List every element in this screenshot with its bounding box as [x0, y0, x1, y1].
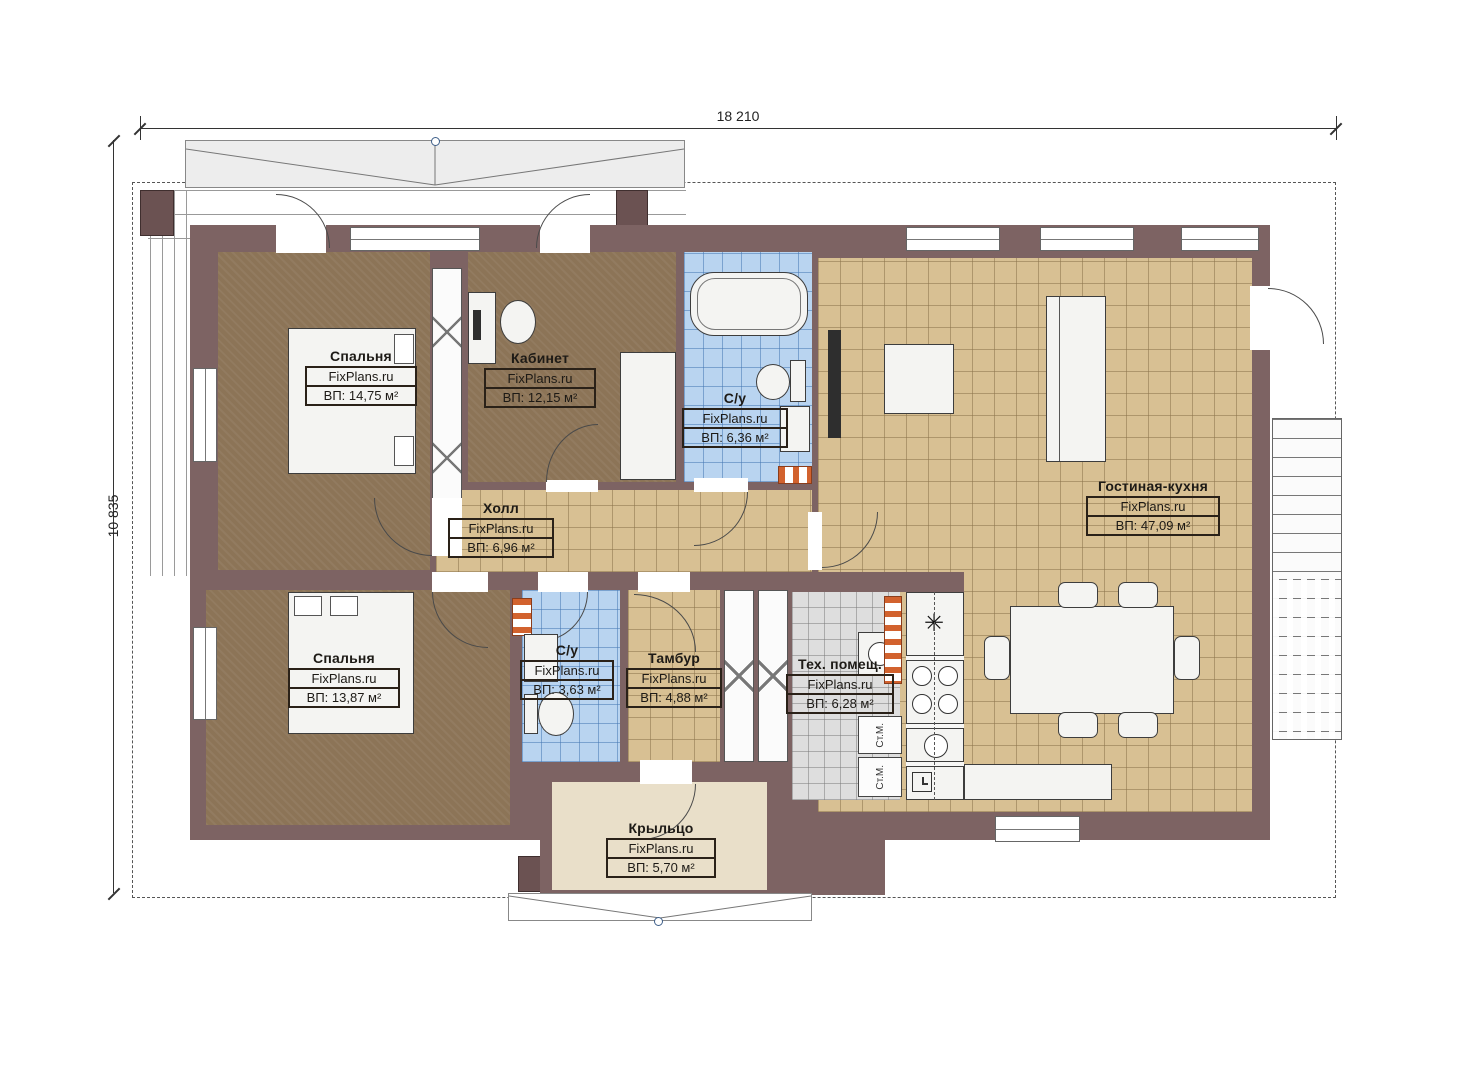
- pillow: [330, 596, 358, 616]
- door-opening-bedroom-2: [432, 572, 488, 592]
- room-name: Кабинет: [484, 350, 596, 366]
- chair: [1058, 582, 1098, 608]
- canopy-lines-icon: [509, 894, 811, 920]
- watermark: FixPlans.ru: [628, 670, 720, 689]
- room-area: ВП: 4,88 м²: [628, 689, 720, 706]
- watermark: FixPlans.ru: [307, 368, 415, 387]
- toilet-tank-1: [790, 360, 806, 402]
- tv-icon: [828, 330, 841, 438]
- burner-icon: [938, 694, 958, 714]
- burner-icon: [912, 666, 932, 686]
- terrace-column-right: [616, 190, 648, 226]
- clock-icon: [912, 772, 932, 792]
- watermark: FixPlans.ru: [684, 410, 786, 429]
- watermark: FixPlans.ru: [1088, 498, 1218, 517]
- room-name: Крыльцо: [606, 820, 716, 836]
- closet-1: [432, 268, 462, 522]
- wardrobe: [620, 352, 676, 480]
- kitchen-centerline: [934, 592, 935, 800]
- sofa: [1046, 296, 1106, 462]
- watermark: FixPlans.ru: [522, 662, 612, 681]
- watermark: FixPlans.ru: [290, 670, 398, 689]
- room-area: ВП: 5,70 м²: [608, 859, 714, 876]
- towel-rail-1: [778, 466, 812, 484]
- watermark: FixPlans.ru: [450, 520, 552, 539]
- toilet-tank-2: [524, 694, 538, 734]
- window-top-2: [906, 227, 1000, 251]
- monitor-icon: [473, 310, 481, 340]
- room-area: ВП: 6,28 м²: [788, 695, 892, 712]
- office-chair: [500, 300, 536, 344]
- room-label-office: Кабинет FixPlans.ru ВП: 12,15 м²: [484, 350, 596, 408]
- watermark: FixPlans.ru: [486, 370, 594, 389]
- window-top-4: [1181, 227, 1259, 251]
- dimension-tick: [108, 888, 121, 901]
- entrance-door-opening: [1250, 286, 1270, 350]
- room-area: ВП: 47,09 м²: [1088, 517, 1218, 534]
- room-name: Спальня: [288, 650, 400, 666]
- room-label-tech-room: Тех. помещ. FixPlans.ru ВП: 6,28 м²: [786, 656, 894, 714]
- window-left-2: [193, 627, 217, 720]
- extension-line: [1336, 116, 1337, 140]
- ridge-marker: [431, 137, 440, 146]
- room-area: ВП: 13,87 м²: [290, 689, 398, 706]
- room-area: ВП: 6,96 м²: [450, 539, 552, 556]
- kitchen-partition-wall: [812, 572, 964, 592]
- room-name: С/у: [520, 642, 614, 658]
- door-opening-living: [808, 512, 822, 570]
- door-opening-vestibule-bottom: [640, 760, 692, 784]
- room-name: Спальня: [305, 348, 417, 364]
- room-label-bathroom-1: С/у FixPlans.ru ВП: 6,36 м²: [682, 390, 788, 448]
- room-label-bedroom-1: Спальня FixPlans.ru ВП: 14,75 м²: [305, 348, 417, 406]
- door-opening-bathroom-2: [538, 572, 588, 592]
- washing-machine-label: Ст.М.: [875, 723, 886, 748]
- terrace-column-left: [140, 190, 174, 236]
- washing-machine-2: Ст.М.: [858, 757, 902, 797]
- room-label-hall: Холл FixPlans.ru ВП: 6,96 м²: [448, 500, 554, 558]
- room-label-porch: Крыльцо FixPlans.ru ВП: 5,70 м²: [606, 820, 716, 878]
- room-label-vestibule: Тамбур FixPlans.ru ВП: 4,88 м²: [626, 650, 722, 708]
- chair: [1174, 636, 1200, 680]
- closet-2: [724, 590, 754, 762]
- chair: [1118, 582, 1158, 608]
- pillow: [394, 436, 414, 466]
- chair: [1118, 712, 1158, 738]
- room-label-bathroom-2: С/у FixPlans.ru ВП: 3,63 м²: [520, 642, 614, 700]
- sink-basin-icon: [924, 734, 948, 758]
- door-opening-vestibule-top: [638, 572, 690, 592]
- chair: [1058, 712, 1098, 738]
- room-label-bedroom-2: Спальня FixPlans.ru ВП: 13,87 м²: [288, 650, 400, 708]
- closet-3: [758, 590, 788, 762]
- room-area: ВП: 12,15 м²: [486, 389, 594, 406]
- window-bottom-1: [995, 816, 1080, 842]
- canopy-marker: [654, 917, 663, 926]
- chair: [984, 636, 1010, 680]
- room-name: Тамбур: [626, 650, 722, 666]
- extension-line: [140, 116, 141, 140]
- floor-plan: ✳ Ст.М. Ст.М. Спальня F: [0, 0, 1473, 1080]
- room-name: Тех. помещ.: [786, 656, 894, 672]
- exterior-stairs: [1272, 418, 1342, 740]
- dining-table: [1010, 606, 1174, 714]
- washing-machine-1: Ст.М.: [858, 716, 902, 754]
- dimension-height: 10 835: [105, 466, 121, 566]
- window-top-1: [350, 227, 480, 251]
- room-name: Холл: [448, 500, 554, 516]
- room-area: ВП: 6,36 м²: [684, 429, 786, 446]
- door-opening-bathroom-1: [694, 478, 748, 492]
- window-left-1: [193, 368, 217, 462]
- watermark: FixPlans.ru: [788, 676, 892, 695]
- terrace-canopy: [185, 140, 685, 188]
- window-top-3: [1040, 227, 1134, 251]
- room-area: ВП: 3,63 м²: [522, 681, 612, 698]
- canopy-lines-icon: [186, 141, 684, 187]
- sideboard: [964, 764, 1112, 800]
- dimension-width: 18 210: [688, 108, 788, 124]
- room-label-living-kitchen: Гостиная-кухня FixPlans.ru ВП: 47,09 м²: [1086, 478, 1220, 536]
- bathtub: [690, 272, 808, 336]
- room-name: Гостиная-кухня: [1086, 478, 1220, 494]
- coffee-table: [884, 344, 954, 414]
- dimension-line-top: [140, 128, 1336, 129]
- burner-icon: [938, 666, 958, 686]
- watermark: FixPlans.ru: [608, 840, 714, 859]
- washing-machine-label: Ст.М.: [875, 765, 886, 790]
- dimension-tick: [108, 135, 121, 148]
- room-name: С/у: [682, 390, 788, 406]
- towel-rail-2: [512, 598, 532, 636]
- pergola-lines: [150, 190, 188, 576]
- room-area: ВП: 14,75 м²: [307, 387, 415, 404]
- burner-icon: [912, 694, 932, 714]
- pillow: [294, 596, 322, 616]
